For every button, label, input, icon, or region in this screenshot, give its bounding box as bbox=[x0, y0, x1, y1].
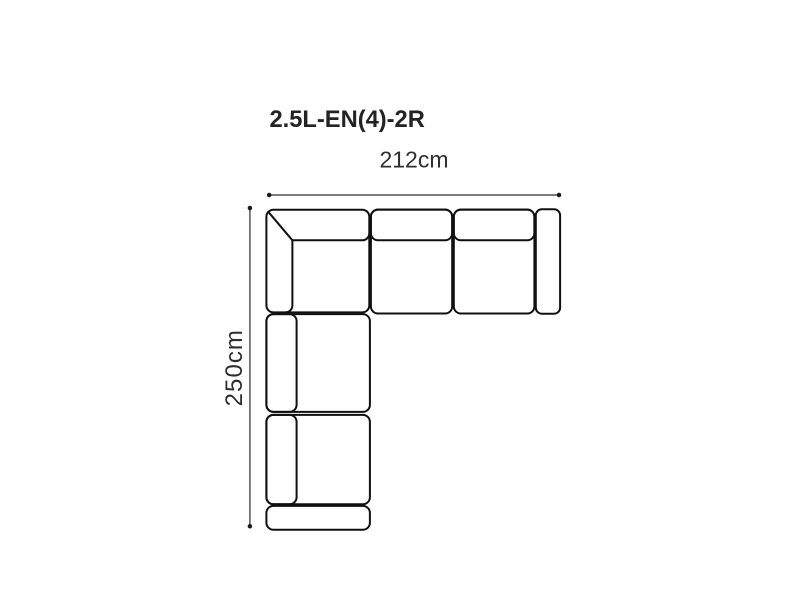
svg-text:250cm: 250cm bbox=[221, 329, 248, 406]
svg-text:2.5L-EN(4)-2R: 2.5L-EN(4)-2R bbox=[270, 107, 425, 133]
svg-text:212cm: 212cm bbox=[379, 147, 448, 173]
